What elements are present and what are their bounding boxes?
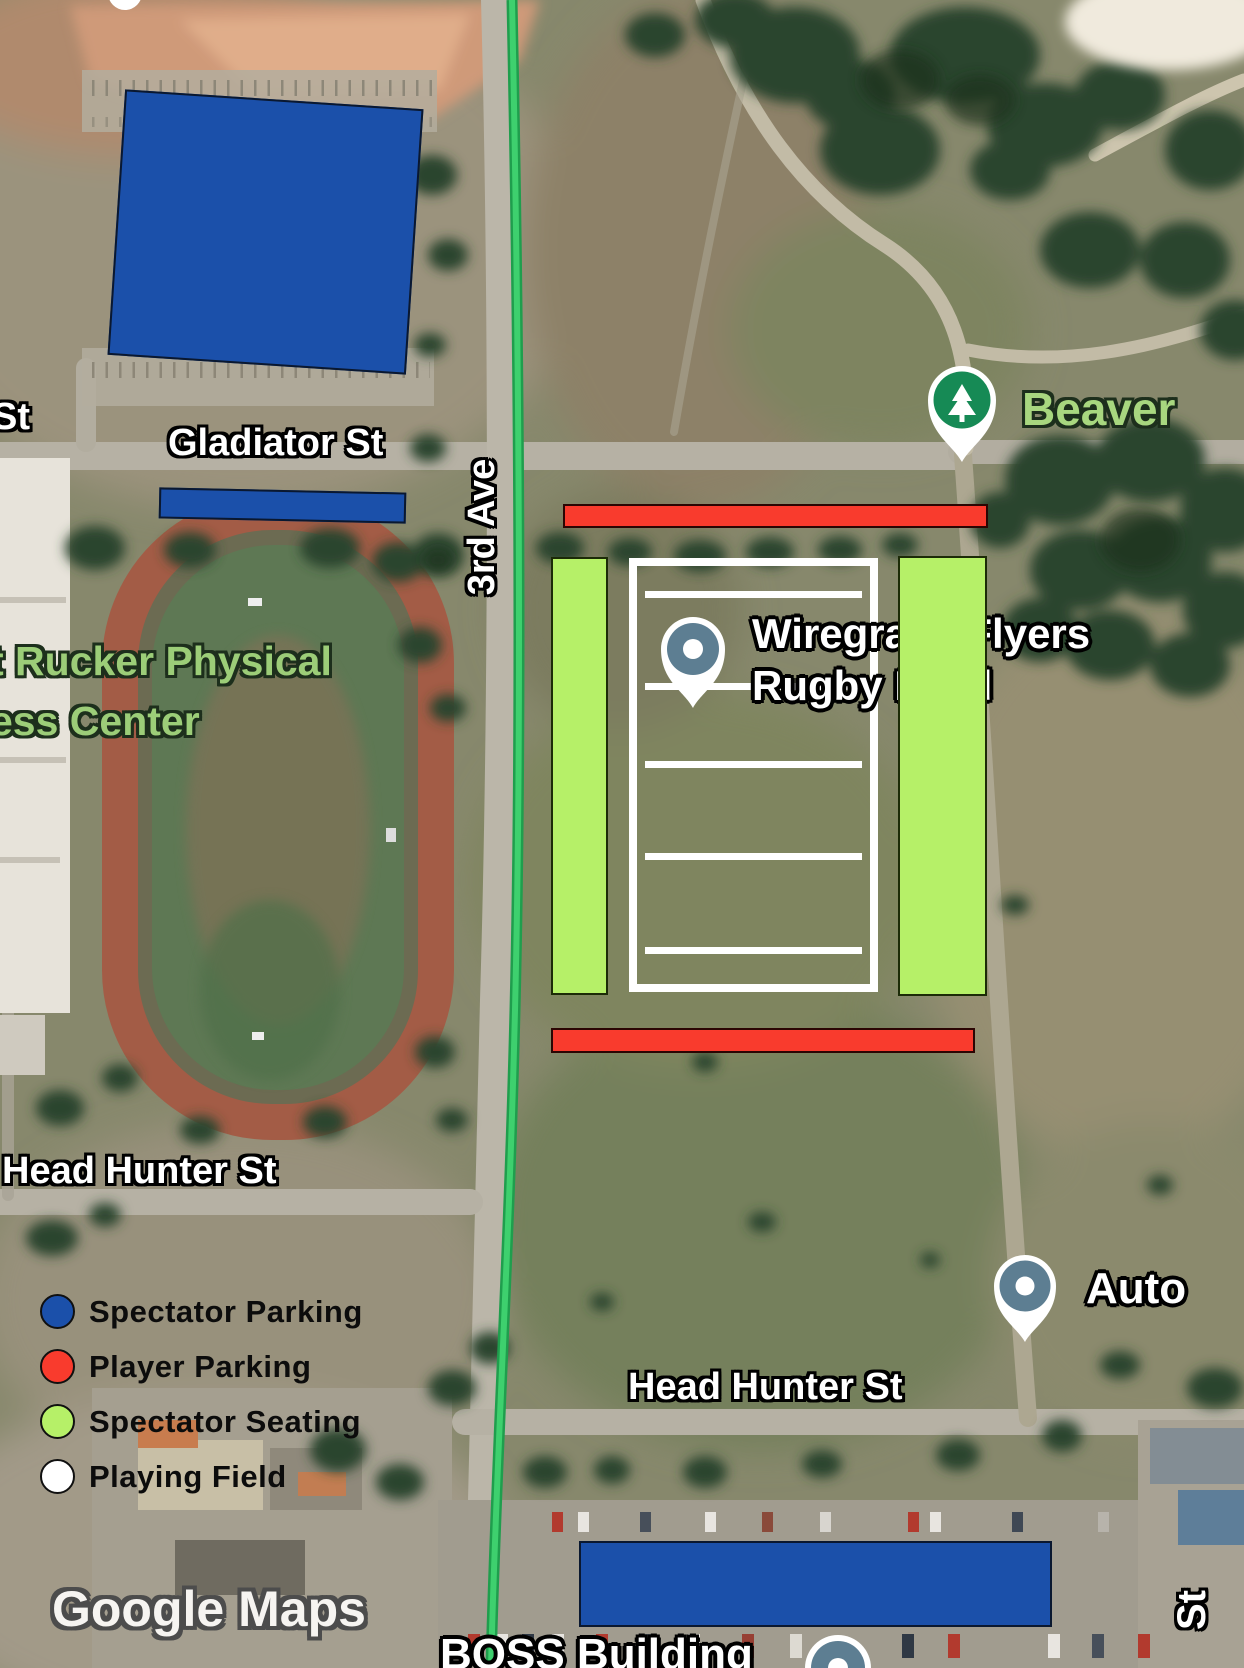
spectator-seating-east <box>898 556 987 996</box>
field-line <box>645 761 862 768</box>
spectator-seating-west <box>551 557 608 995</box>
legend: Spectator Parking Player Parking Spectat… <box>40 1295 363 1515</box>
poi-label-boss-building[interactable]: BOSS Building <box>440 1630 753 1668</box>
legend-row-playing-field: Playing Field <box>40 1460 363 1493</box>
legend-row-spectator-seating: Spectator Seating <box>40 1405 363 1438</box>
poi-label-beaver[interactable]: Beaver <box>1022 382 1175 436</box>
legend-swatch-player-parking <box>40 1349 75 1384</box>
rugby-field-pin[interactable] <box>633 598 753 718</box>
street-label-head-hunter-west: Head Hunter St <box>2 1150 276 1193</box>
auto-pin[interactable] <box>965 1234 1085 1354</box>
google-maps-watermark: Google Maps <box>52 1580 366 1638</box>
field-line <box>645 853 862 860</box>
annotated-map: St Gladiator St 3rd Ave Head Hunter St H… <box>0 0 1244 1668</box>
spectator-parking-area-south <box>579 1541 1052 1627</box>
building-west <box>0 458 70 1075</box>
poi-label-fitness-center-line1[interactable]: t Rucker Physical <box>0 638 332 685</box>
legend-label-spectator-parking: Spectator Parking <box>89 1294 363 1330</box>
legend-row-player-parking: Player Parking <box>40 1350 363 1383</box>
spectator-parking-area-northwest <box>108 89 424 374</box>
player-parking-strip-north <box>563 504 988 528</box>
street-label-st-west: St <box>0 396 30 439</box>
street-label-head-hunter-east: Head Hunter St <box>628 1366 902 1409</box>
street-label-gladiator: Gladiator St <box>168 422 383 465</box>
legend-label-spectator-seating: Spectator Seating <box>89 1404 361 1440</box>
running-track <box>120 512 436 1122</box>
legend-label-player-parking: Player Parking <box>89 1349 311 1385</box>
beaver-park-pin[interactable] <box>902 346 1022 466</box>
legend-label-playing-field: Playing Field <box>89 1459 287 1495</box>
player-parking-strip-south <box>551 1028 975 1053</box>
field-line <box>645 947 862 954</box>
legend-row-spectator-parking: Spectator Parking <box>40 1295 363 1328</box>
legend-swatch-playing-field <box>40 1459 75 1494</box>
legend-swatch-spectator-parking <box>40 1294 75 1329</box>
poi-label-auto[interactable]: Auto <box>1086 1264 1186 1314</box>
spectator-parking-strip-gladiator <box>159 487 407 523</box>
poi-label-fitness-center-line2[interactable]: ess Center <box>0 698 200 745</box>
street-label-3rd-ave: 3rd Ave <box>455 427 509 627</box>
street-label-st-southeast: St <box>1165 1530 1219 1668</box>
field-line <box>645 591 862 598</box>
legend-swatch-spectator-seating <box>40 1404 75 1439</box>
